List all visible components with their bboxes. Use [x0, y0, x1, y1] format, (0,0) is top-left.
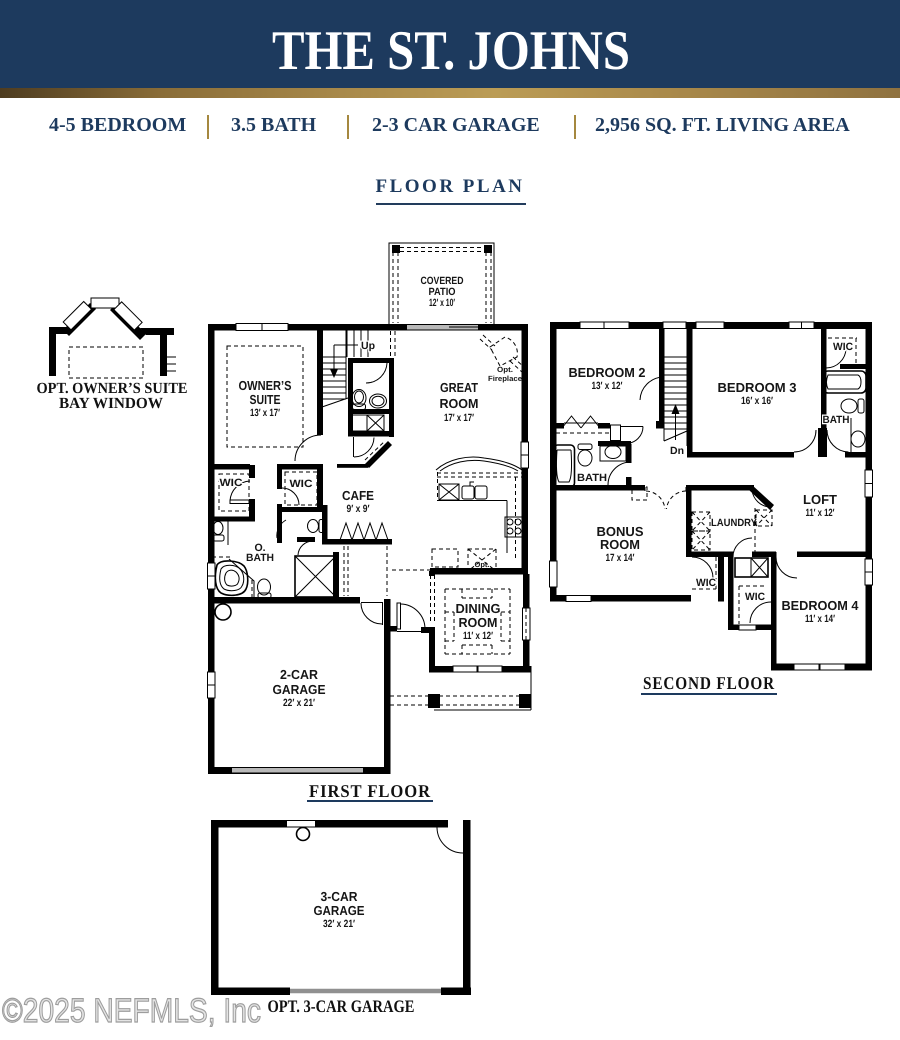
svg-text:Opt.: Opt.: [497, 365, 513, 374]
svg-text:17′ x 17′: 17′ x 17′: [444, 412, 474, 424]
svg-text:Dn: Dn: [670, 445, 684, 457]
svg-text:2-CAR: 2-CAR: [280, 667, 319, 682]
svg-text:11′ x 12′: 11′ x 12′: [806, 507, 835, 519]
svg-text:FIRST FLOOR: FIRST FLOOR: [309, 781, 431, 801]
svg-text:BATH: BATH: [823, 414, 850, 426]
svg-text:17 x 14′: 17 x 14′: [606, 552, 635, 564]
svg-text:9′ x 9′: 9′ x 9′: [347, 503, 370, 515]
svg-text:ROOM: ROOM: [600, 537, 640, 552]
svg-text:SECOND FLOOR: SECOND FLOOR: [643, 673, 775, 693]
svg-text:SUITE: SUITE: [250, 392, 281, 407]
svg-text:OWNER’S: OWNER’S: [239, 378, 292, 393]
svg-text:WIC: WIC: [290, 478, 313, 490]
svg-text:ROOM: ROOM: [440, 396, 479, 411]
svg-text:BEDROOM 4: BEDROOM 4: [782, 598, 860, 613]
svg-text:WIC: WIC: [220, 477, 243, 489]
svg-text:BATH: BATH: [246, 552, 274, 564]
svg-text:22′ x 21′: 22′ x 21′: [283, 697, 315, 709]
svg-text:GARAGE: GARAGE: [273, 682, 326, 697]
svg-text:LOFT: LOFT: [803, 492, 837, 507]
svg-text:CAFE: CAFE: [342, 488, 374, 503]
svg-text:WIC: WIC: [833, 341, 853, 353]
svg-text:32′ x 21′: 32′ x 21′: [323, 918, 355, 930]
svg-text:Fireplace: Fireplace: [488, 374, 522, 383]
svg-text:DINING: DINING: [456, 601, 501, 616]
svg-text:BEDROOM 3: BEDROOM 3: [718, 380, 797, 395]
svg-text:11′ x 12′: 11′ x 12′: [463, 630, 493, 642]
svg-text:13′ x 12′: 13′ x 12′: [592, 380, 623, 392]
svg-text:©2025 NEFMLS, Inc: ©2025 NEFMLS, Inc: [2, 992, 261, 1030]
svg-text:THE ST. JOHNS: THE ST. JOHNS: [272, 20, 630, 82]
svg-text:16′ x 16′: 16′ x 16′: [741, 395, 773, 407]
svg-text:Up: Up: [361, 340, 375, 352]
svg-text:GARAGE: GARAGE: [314, 903, 365, 918]
svg-text:13′ x 17′: 13′ x 17′: [250, 407, 280, 419]
svg-text:12′ x 10′: 12′ x 10′: [429, 297, 455, 309]
svg-text:OPT. 3-CAR GARAGE: OPT. 3-CAR GARAGE: [268, 996, 415, 1016]
svg-text:BEDROOM 2: BEDROOM 2: [569, 365, 646, 380]
svg-text:GREAT: GREAT: [440, 380, 478, 395]
svg-text:WIC: WIC: [696, 577, 716, 589]
svg-text:3-CAR: 3-CAR: [321, 889, 359, 904]
svg-text:Opt.: Opt.: [475, 560, 490, 569]
svg-text:BAY WINDOW: BAY WINDOW: [59, 395, 163, 412]
svg-text:BATH: BATH: [577, 472, 607, 484]
svg-text:WIC: WIC: [745, 591, 765, 603]
svg-text:11′ x 14′: 11′ x 14′: [805, 613, 835, 625]
svg-text:LAUNDRY: LAUNDRY: [711, 517, 757, 529]
svg-text:ROOM: ROOM: [459, 615, 498, 630]
